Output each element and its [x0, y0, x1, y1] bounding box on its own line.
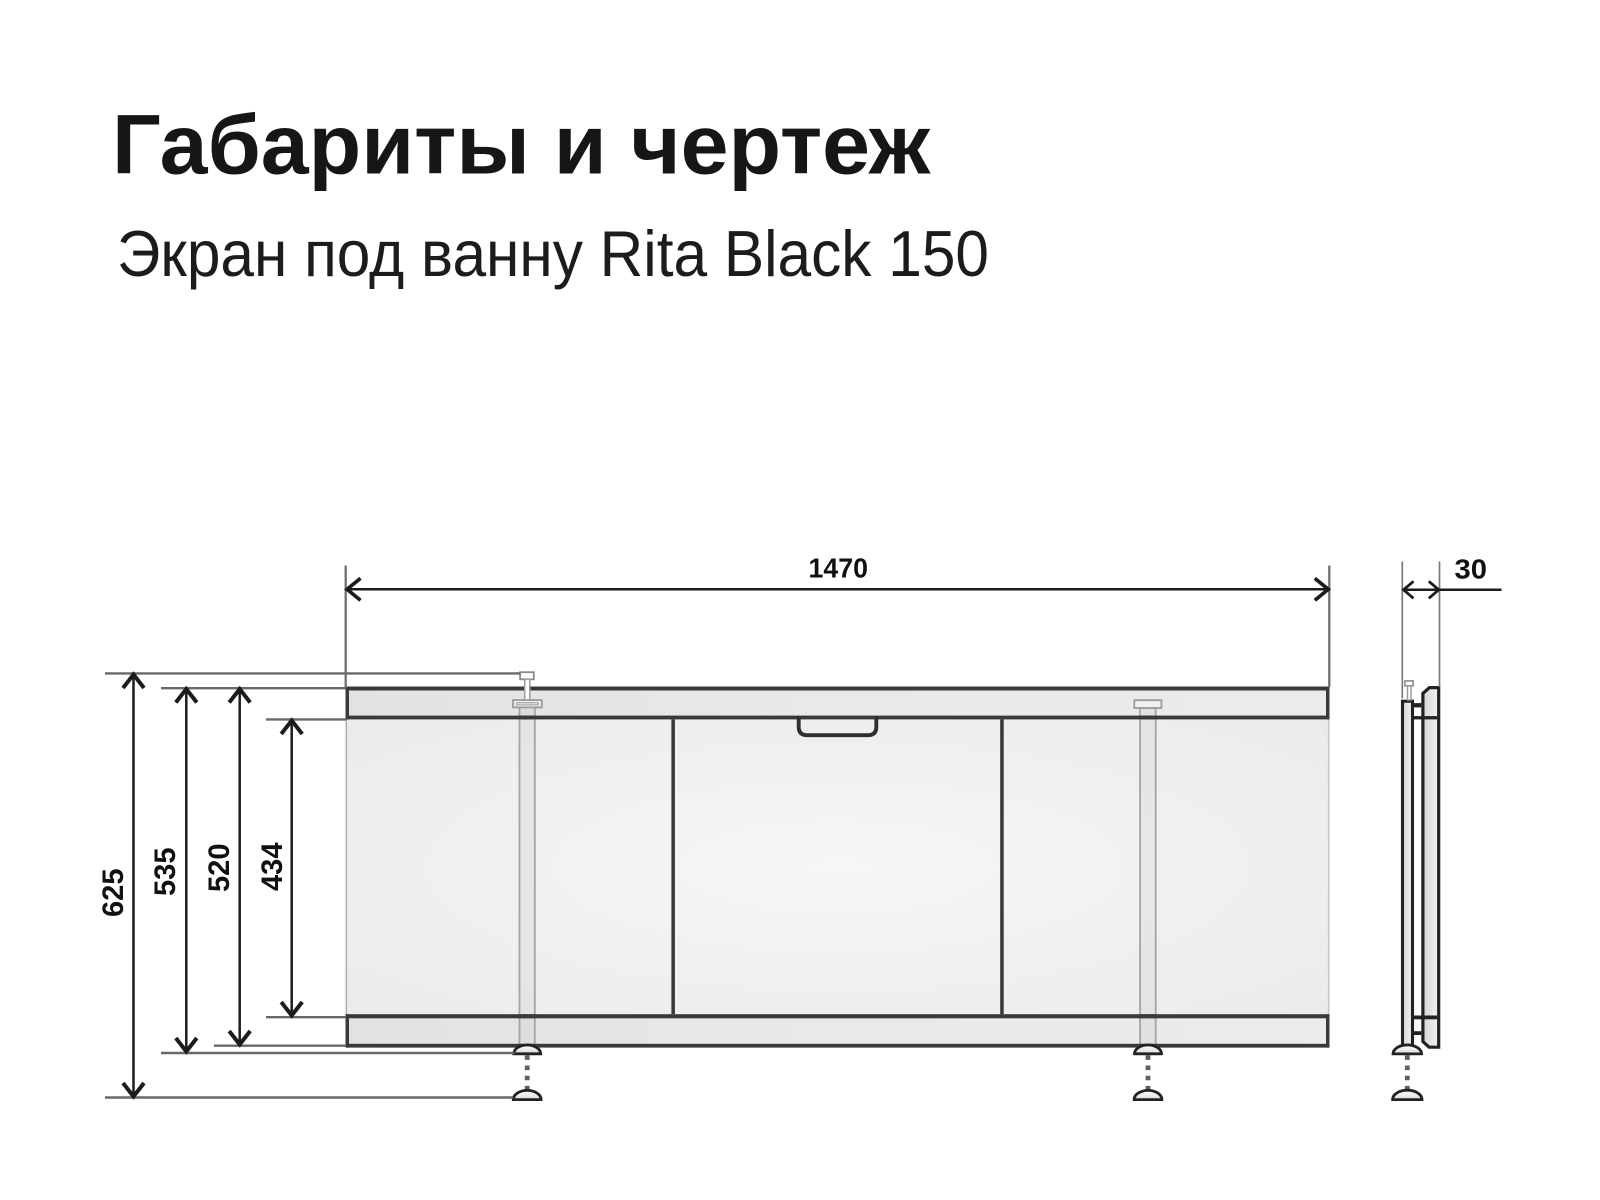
svg-text:1470: 1470: [809, 553, 869, 584]
svg-text:535: 535: [149, 848, 182, 897]
svg-text:434: 434: [256, 842, 289, 891]
svg-text:520: 520: [203, 844, 236, 893]
svg-text:30: 30: [1455, 554, 1488, 585]
svg-text:Экран под ванну Rita Black 150: Экран под ванну Rita Black 150: [117, 217, 989, 290]
svg-text:625: 625: [97, 869, 130, 918]
svg-text:Габариты и чертеж: Габариты и чертеж: [112, 98, 931, 192]
